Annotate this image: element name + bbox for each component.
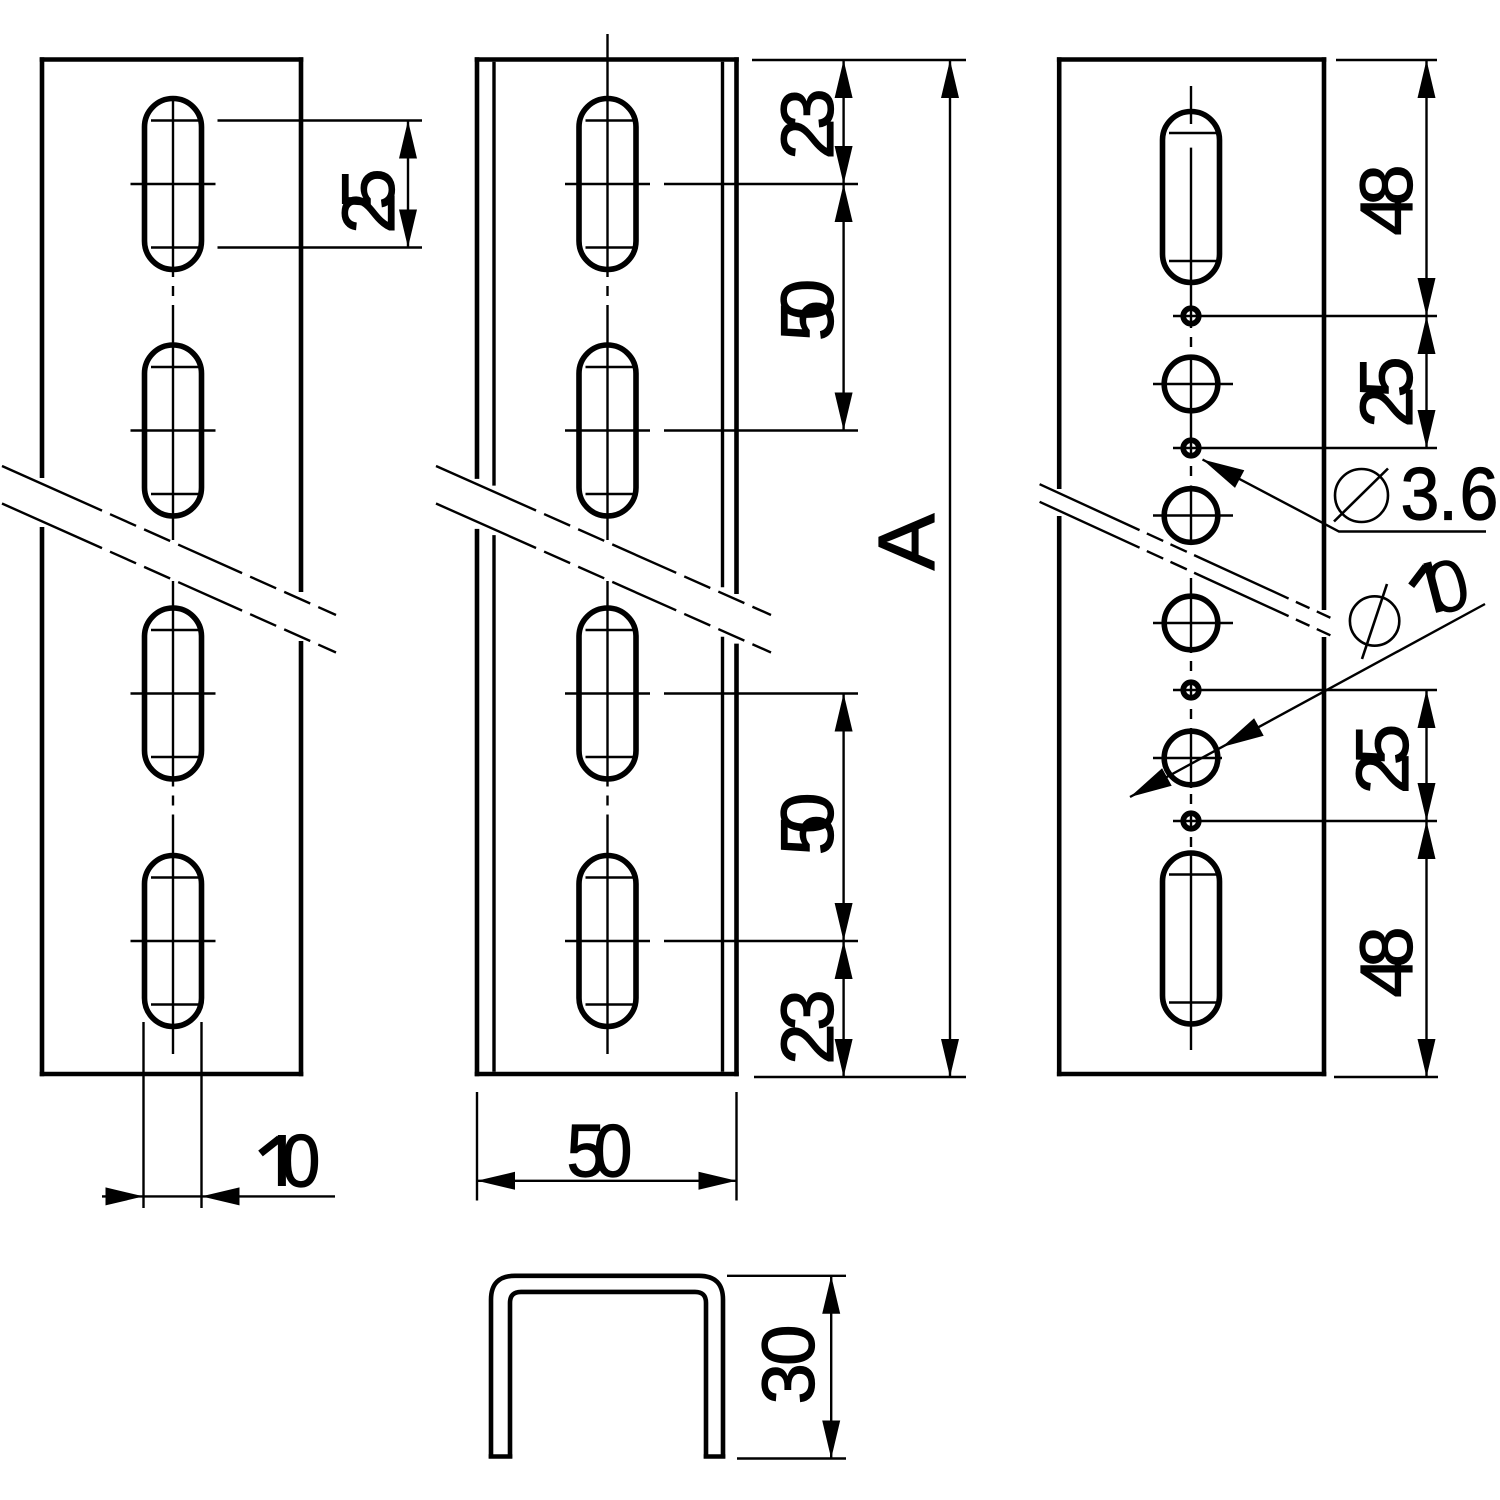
svg-text:8: 8 — [1345, 164, 1428, 205]
svg-text:3: 3 — [766, 88, 849, 129]
svg-text:0: 0 — [766, 793, 849, 834]
svg-text:8: 8 — [1345, 926, 1428, 967]
svg-text:5: 5 — [1345, 356, 1428, 397]
svg-text:5: 5 — [1341, 724, 1424, 765]
svg-text:0: 0 — [747, 1325, 830, 1366]
svg-text:3: 3 — [766, 989, 849, 1030]
svg-text:0: 0 — [766, 279, 849, 320]
svg-text:0: 0 — [594, 1111, 633, 1193]
svg-text:5: 5 — [327, 168, 410, 209]
svg-text:3: 3 — [747, 1363, 830, 1404]
svg-text:A: A — [862, 514, 951, 571]
svg-text:.: . — [1438, 454, 1457, 536]
svg-text:6: 6 — [1460, 454, 1499, 536]
svg-text:0: 0 — [282, 1121, 321, 1203]
svg-text:3: 3 — [1401, 454, 1440, 536]
